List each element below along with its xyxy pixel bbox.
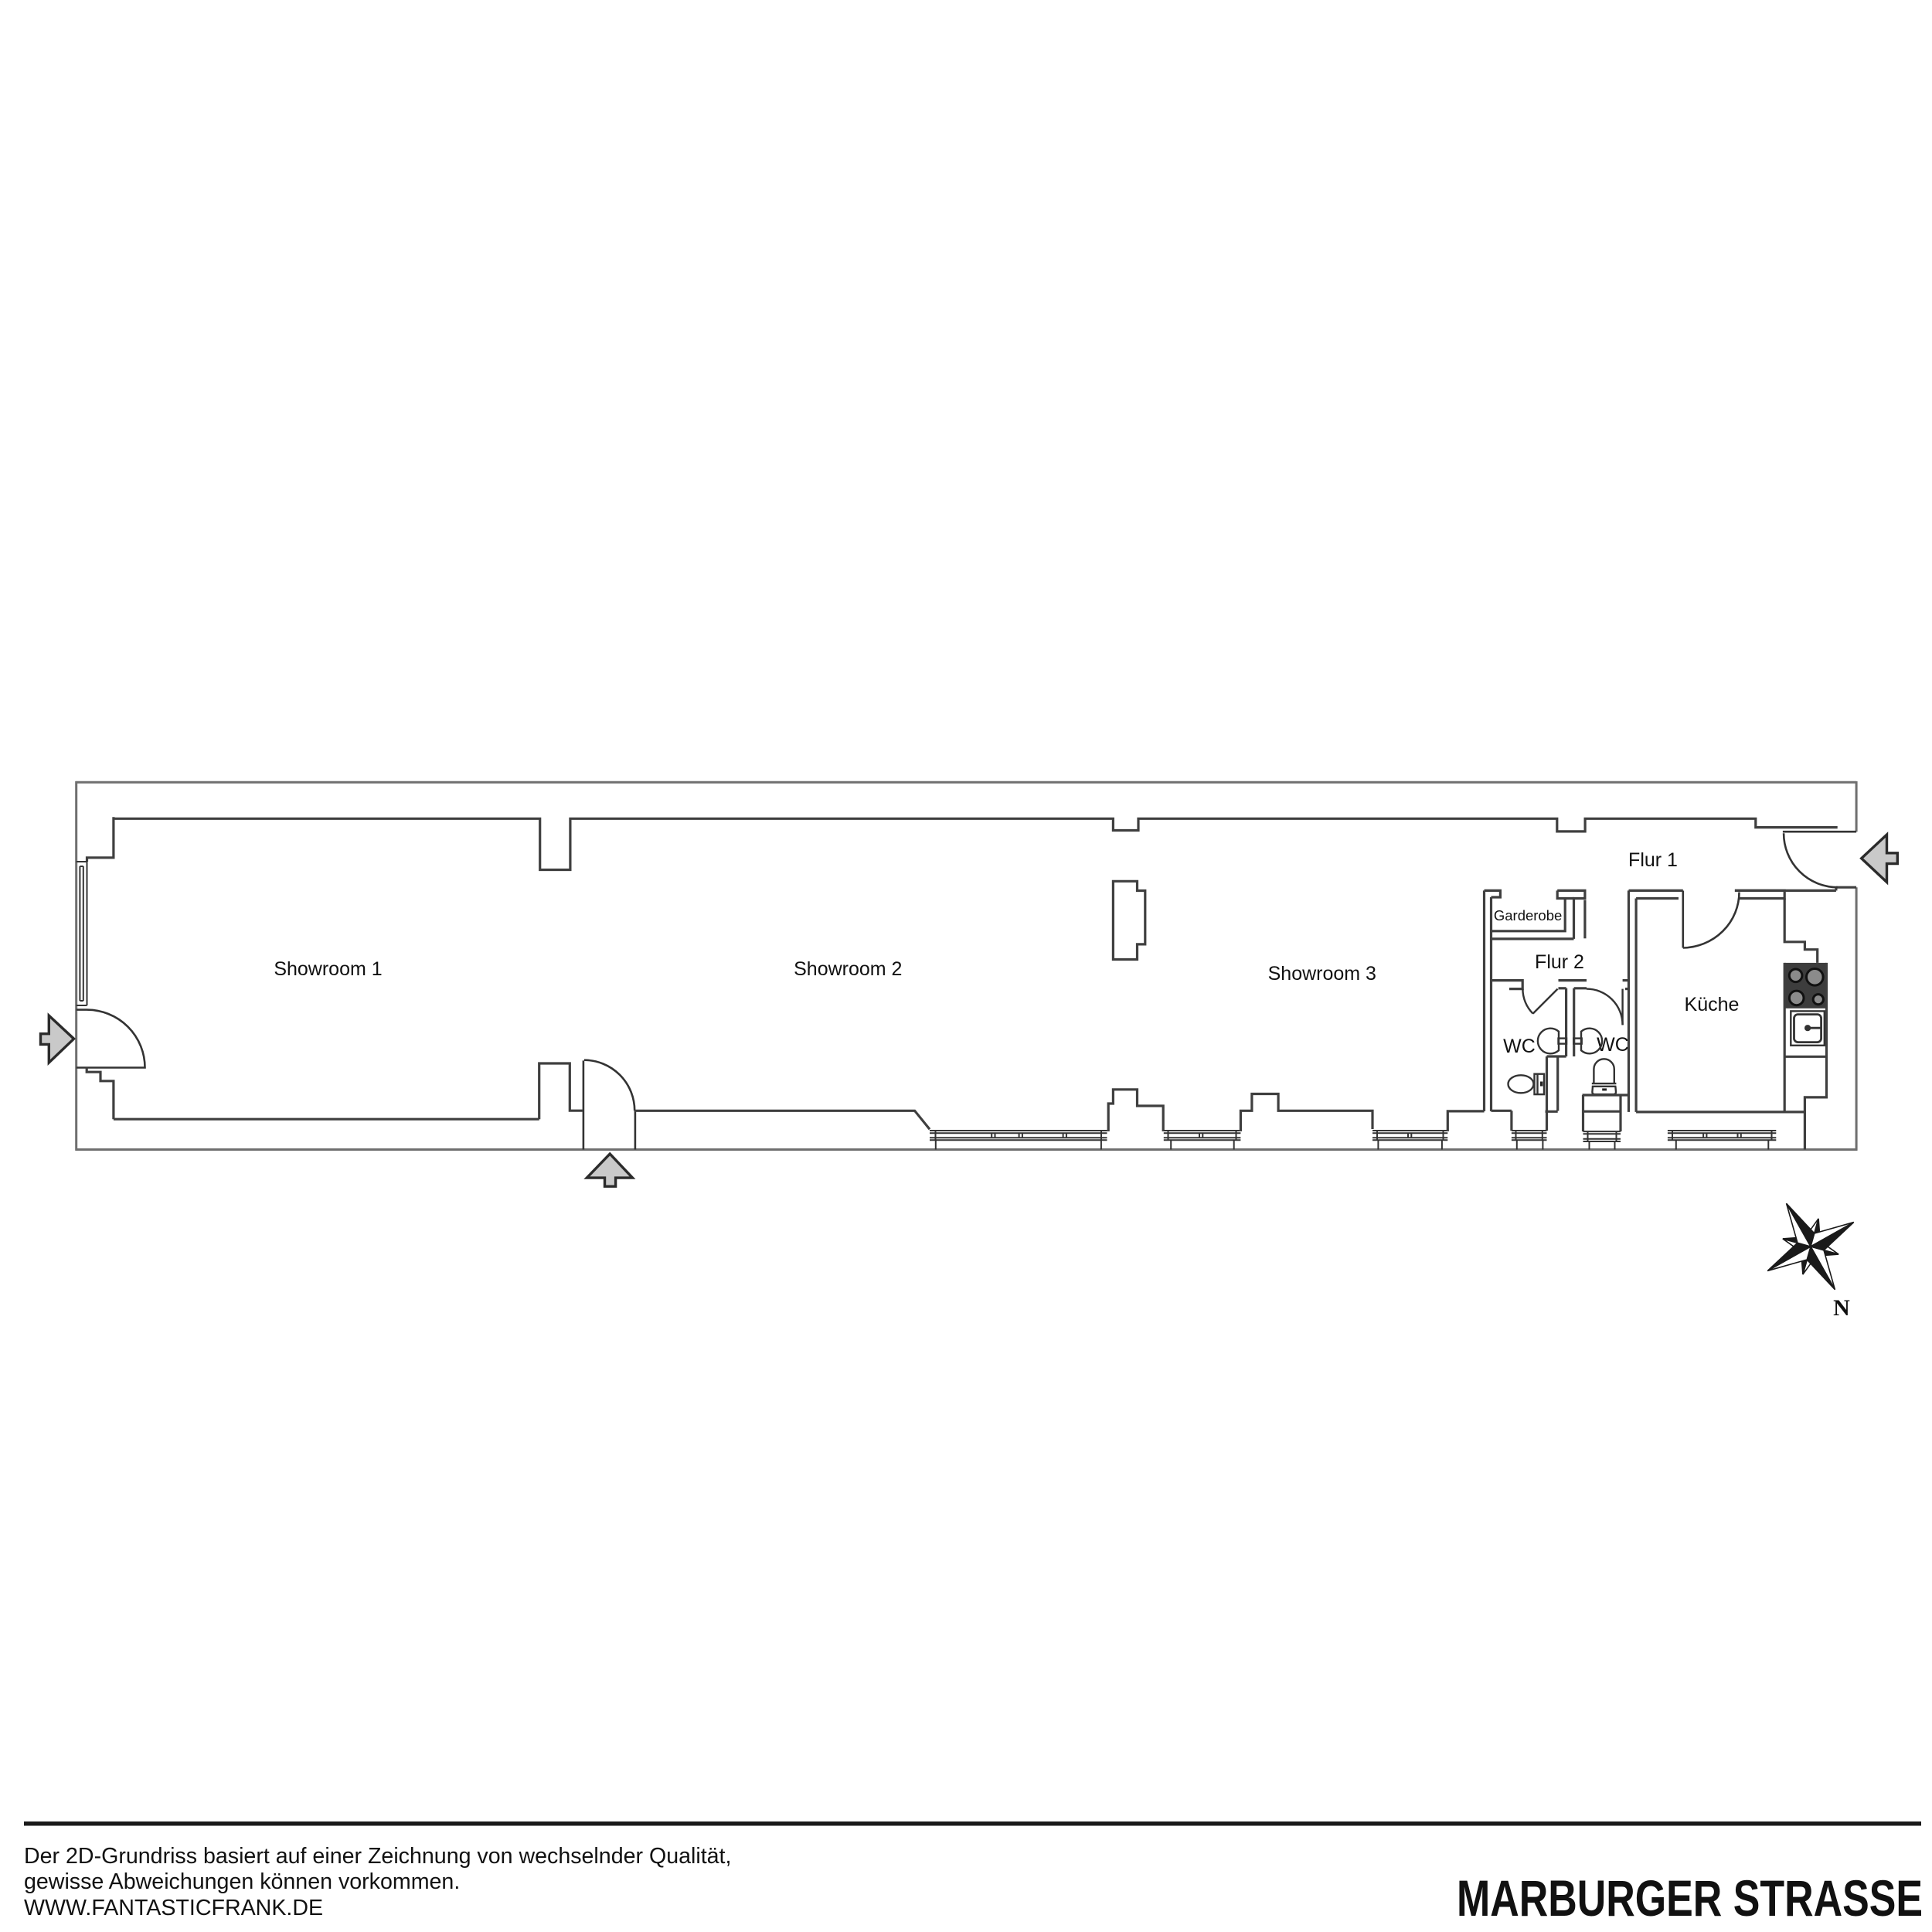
svg-text:WWW.FANTASTICFRANK.DE: WWW.FANTASTICFRANK.DE — [24, 1896, 323, 1920]
svg-text:MARBURGER STRASSE: MARBURGER STRASSE — [1457, 1869, 1923, 1927]
svg-text:Showroom 3: Showroom 3 — [1268, 963, 1376, 985]
svg-text:Showroom 1: Showroom 1 — [274, 958, 382, 980]
svg-text:Garderobe: Garderobe — [1494, 907, 1562, 923]
svg-text:Küche: Küche — [1685, 994, 1740, 1015]
svg-text:WC: WC — [1503, 1036, 1536, 1057]
svg-text:Showroom 2: Showroom 2 — [794, 958, 902, 980]
svg-text:Flur 2: Flur 2 — [1535, 951, 1584, 973]
svg-text:gewisse Abweichungen können vo: gewisse Abweichungen können vorkommen. — [24, 1869, 460, 1894]
svg-text:N: N — [1833, 1295, 1850, 1321]
svg-text:Der 2D-Grundriss basiert auf e: Der 2D-Grundriss basiert auf einer Zeich… — [24, 1844, 731, 1869]
svg-text:Flur 1: Flur 1 — [1628, 849, 1678, 871]
